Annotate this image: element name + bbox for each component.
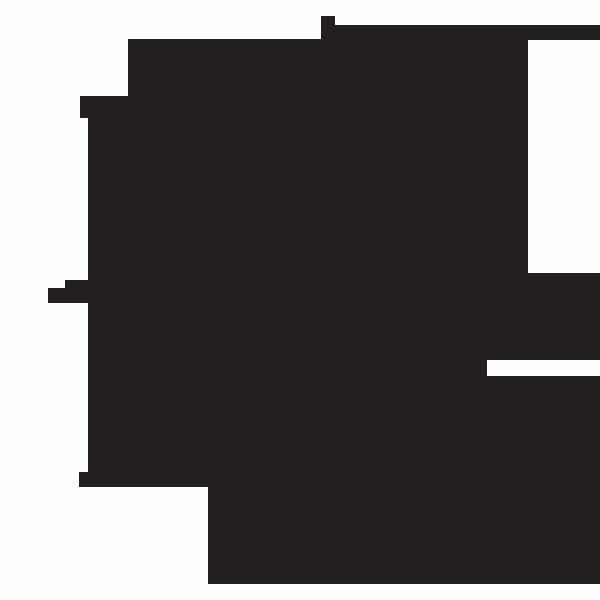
page-canvas	[0, 0, 600, 600]
silhouette-graphic	[0, 0, 600, 600]
